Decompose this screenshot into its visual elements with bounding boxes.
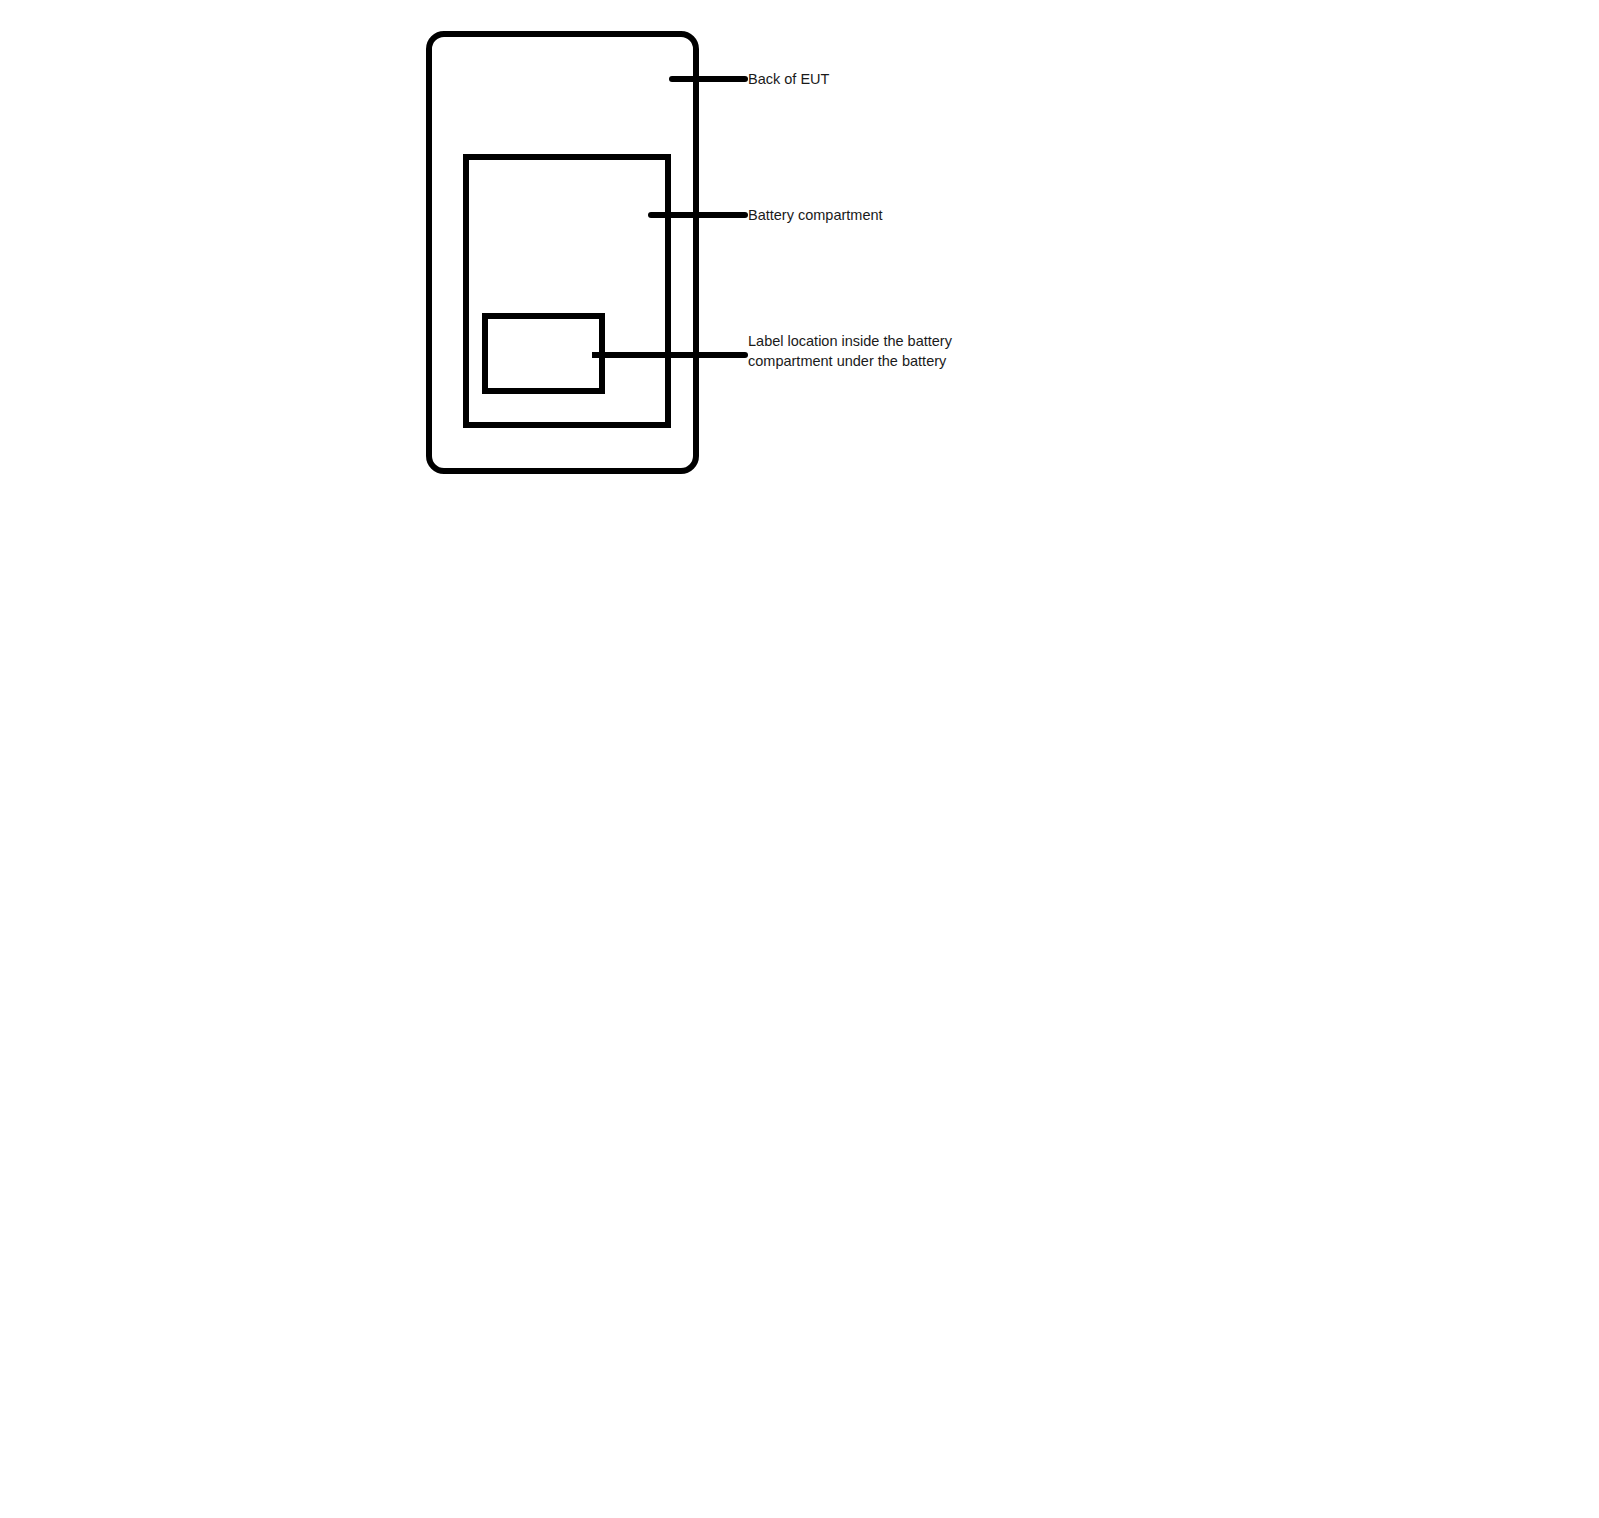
leader-line-battery-compartment <box>648 212 748 218</box>
label-location-outline <box>482 313 605 394</box>
annotation-label-location-line2: compartment under the battery <box>748 351 952 371</box>
diagram-canvas: Back of EUT Battery compartment Label lo… <box>0 0 1599 1518</box>
annotation-back-of-eut: Back of EUT <box>748 69 829 89</box>
annotation-label-location-line1: Label location inside the battery <box>748 331 952 351</box>
annotation-label-location: Label location inside the battery compar… <box>748 331 952 371</box>
annotation-battery-compartment: Battery compartment <box>748 205 883 225</box>
leader-line-back-of-eut <box>669 76 748 82</box>
leader-line-label-location <box>592 352 748 358</box>
